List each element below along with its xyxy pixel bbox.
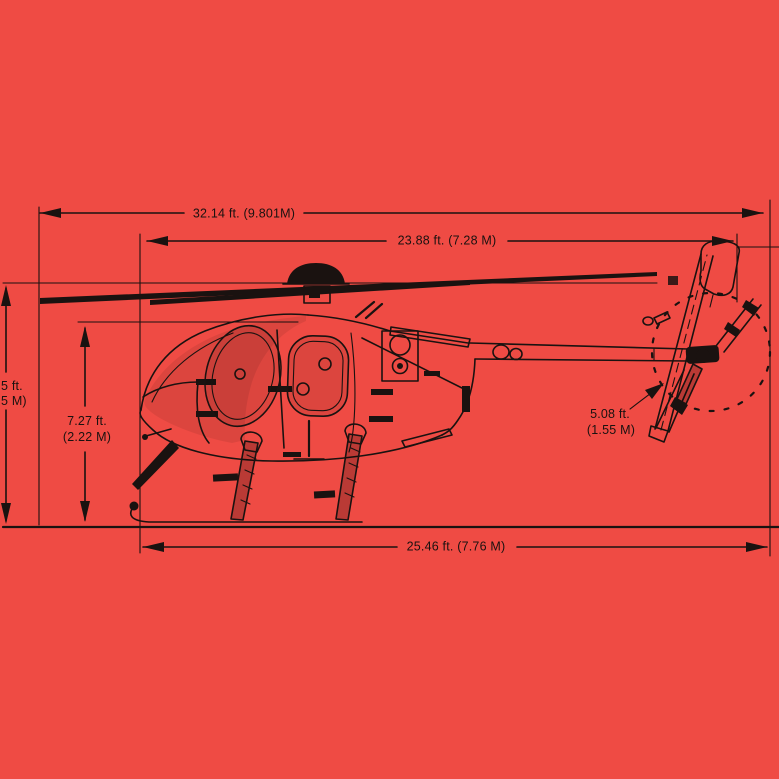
intake-circle-upper: [390, 335, 410, 355]
overall-height-label-ft: 5 ft.: [1, 379, 23, 393]
arrowhead-down: [80, 501, 90, 522]
arrowhead-right: [746, 542, 767, 552]
tail-rotor-label-ft: 5.08 ft.: [590, 407, 630, 421]
nose-fin: [132, 440, 179, 490]
exhaust-pipe-left: [493, 345, 509, 359]
dimension-overall-length: 32.14 ft. (9.801M): [39, 200, 770, 556]
rear-fuselage-edge: [442, 359, 475, 435]
skid-front-ball: [130, 502, 139, 511]
arrowhead-down: [1, 503, 11, 524]
arrowhead-up: [80, 326, 90, 347]
boom-bottom: [475, 359, 688, 361]
rear-vent: [462, 386, 470, 412]
vertical-stabilizer: [643, 241, 739, 442]
rear-door-window: [287, 335, 350, 417]
ventral-fin-tip: [649, 426, 668, 442]
tail-rotor-hub: [696, 349, 710, 363]
arrowhead-right: [742, 208, 763, 218]
helicopter-dimension-diagram: 32.14 ft. (9.801M) 23.88 ft. (7.28 M) 25…: [0, 0, 779, 779]
skid-length-label: 25.46 ft. (7.76 M): [407, 540, 506, 554]
fin-fitting-ring: [643, 317, 653, 325]
fin-fitting-block: [668, 276, 678, 285]
rear-step: [314, 490, 335, 498]
skid-tube: [131, 506, 362, 522]
rotor-hub-dome: [287, 263, 345, 284]
fin-tip-pod: [700, 241, 739, 295]
rotor-blade: [40, 272, 657, 304]
exhaust-pipe-right: [510, 349, 522, 360]
roof-antennas: [356, 302, 382, 318]
main-rotor: [40, 263, 657, 318]
leader-line: [630, 393, 651, 409]
cabin-height-label-m: (2.22 M): [63, 430, 111, 444]
cabin-height-label-ft: 7.27 ft.: [67, 414, 107, 428]
rear-strut: [336, 434, 362, 520]
belly-plate: [402, 429, 452, 447]
pod-tick: [710, 295, 713, 307]
overall-height-label-m: 5 M): [1, 394, 27, 408]
arrowhead-left: [40, 208, 61, 218]
front-strut: [231, 441, 258, 520]
overall-length-label: 32.14 ft. (9.801M): [193, 207, 295, 221]
arrowhead-left: [143, 542, 164, 552]
dimension-tail-rotor: 5.08 ft. (1.55 M): [587, 383, 664, 437]
cowl-diagonal: [362, 338, 466, 390]
rotor-to-tail-label: 23.88 ft. (7.28 M): [398, 234, 497, 248]
tail-rotor-label-m: (1.55 M): [587, 423, 635, 437]
arrowhead-up: [1, 285, 11, 306]
front-step: [213, 473, 238, 481]
fin-fitting-plate: [654, 312, 670, 324]
intake-dot: [397, 363, 403, 369]
mast-block: [309, 289, 320, 298]
diagram-canvas: 32.14 ft. (9.801M) 23.88 ft. (7.28 M) 25…: [0, 0, 779, 779]
pitot-tip: [142, 434, 148, 440]
dimension-overall-height: 5 ft. 5 M): [1, 285, 27, 524]
boom-top: [470, 343, 688, 349]
arrowhead-left: [147, 236, 168, 246]
dimension-skid-length: 25.46 ft. (7.76 M): [143, 540, 767, 554]
